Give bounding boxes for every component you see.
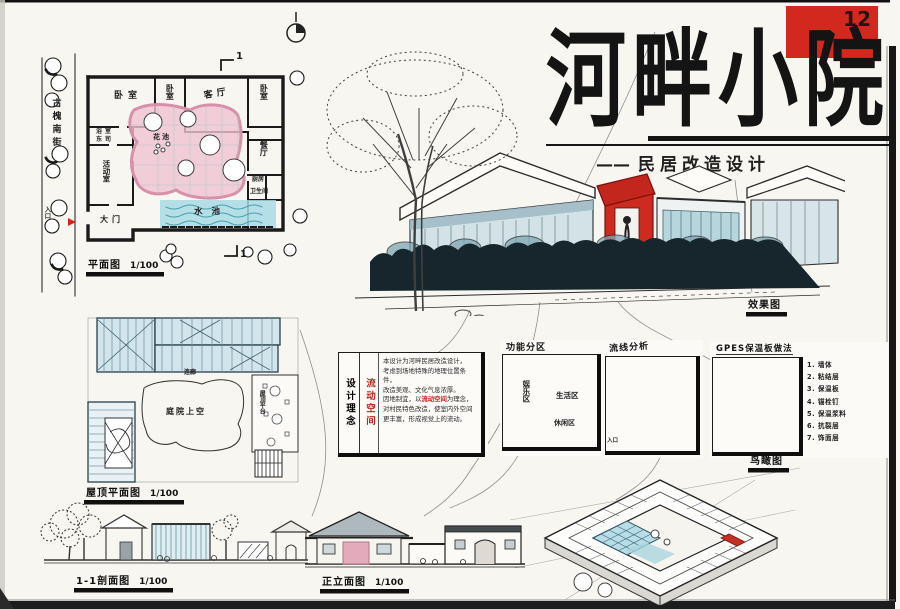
elev-arch-door bbox=[475, 540, 495, 564]
room-label: 卫生间 bbox=[250, 189, 268, 195]
zone-label-right: 生活区 bbox=[556, 392, 579, 400]
elevation-drawing bbox=[303, 496, 530, 576]
north-arrow-icon bbox=[287, 12, 305, 42]
section-drawing bbox=[40, 498, 312, 572]
concept-text: 本设计为河畔民居改造设计， 考虑到场地特殊的地理位置条件， 改造美观、文化气息浓… bbox=[379, 353, 481, 453]
section-mark-label: 1 bbox=[240, 250, 247, 261]
pond-label: 水池 bbox=[194, 208, 229, 217]
roof-plan-caption: 屋顶平面图1/100 bbox=[84, 484, 184, 499]
floor-plan-caption: 平面图1/100 bbox=[86, 256, 164, 271]
room-label: 卧室 bbox=[165, 84, 173, 100]
room-label: 厨房 bbox=[252, 177, 264, 183]
street-trees-icon bbox=[45, 58, 72, 284]
zone-label-left: 娱乐区 bbox=[522, 380, 530, 403]
elev-roof-left bbox=[309, 512, 409, 536]
circulation-heading: 流线分析 bbox=[609, 339, 650, 355]
room-label: 浴室 bbox=[96, 129, 114, 135]
corridor-label: 连廊 bbox=[184, 370, 196, 376]
elev-parapet-band bbox=[445, 526, 521, 532]
room-label: 卧室 bbox=[259, 84, 267, 100]
axonometric-drawing: 鸟瞰图 bbox=[505, 450, 805, 605]
room-label: 餐厅 bbox=[259, 140, 267, 156]
construction-heading: GPES保温板做法 bbox=[716, 342, 793, 355]
construction-legend: 1. 墙体 2. 粘结层 3. 保温板 4. 锚栓钉 5. 保温浆料 6. 抗裂… bbox=[807, 359, 846, 444]
construction-detail-box: GPES保温板做法 1 2 3 bbox=[710, 342, 888, 458]
house-roof-right bbox=[747, 166, 845, 198]
room-label: 卧室 bbox=[114, 92, 142, 101]
design-concept-box: 设计理念 流动空间 本设计为河畔民居改造设计， 考虑到场地特殊的地理位置条件， … bbox=[338, 352, 488, 458]
zoning-box: 功能分区 娱乐区 生活区 休闲区 bbox=[500, 340, 604, 456]
concept-keyword: 流动空间 bbox=[360, 353, 379, 453]
room-label: 活动室 bbox=[102, 160, 110, 183]
concept-heading: 设计理念 bbox=[339, 353, 360, 453]
roof-bands bbox=[97, 318, 280, 372]
terrace-label: 屋顶平台 bbox=[258, 390, 264, 414]
section-caption: 1-1剖面图1/100 bbox=[74, 572, 173, 587]
perspective-rendering bbox=[315, 48, 845, 316]
middle-gable bbox=[667, 166, 731, 192]
plan-entrance-label: 入口 bbox=[43, 206, 50, 219]
courtyard-label: 庭院上空 bbox=[166, 408, 206, 416]
zone-label-bottom: 休闲区 bbox=[554, 420, 575, 427]
perspective-caption: 效果图 bbox=[746, 296, 787, 311]
presentation-board: 12 河畔小院 ——民居改造设计 bbox=[0, 0, 900, 609]
axon-caption: 鸟瞰图 bbox=[748, 452, 789, 467]
section-mark-label: 1 bbox=[236, 52, 243, 63]
flowerbed-label: 花池 bbox=[153, 134, 171, 141]
circulation-entrance-label: 入口 bbox=[607, 439, 618, 445]
elev-pink-door bbox=[343, 542, 369, 564]
circulation-box: 流线分析 入口 bbox=[603, 340, 703, 458]
room-label: 东司 bbox=[96, 137, 114, 143]
room-label: 大门 bbox=[100, 216, 124, 224]
elevation-caption: 正立面图1/100 bbox=[320, 573, 409, 588]
floor-plan-drawing: 古槐南街 入口 卧室 卧室 客厅 卧室 浴室 东司 餐厅 厨房 卫生间 活动室 … bbox=[38, 50, 320, 302]
zoning-heading: 功能分区 bbox=[506, 340, 546, 353]
street-label: 古槐南街 bbox=[50, 98, 59, 150]
roof-plan-drawing: 连廊 庭院上空 屋顶平台 bbox=[80, 292, 322, 492]
